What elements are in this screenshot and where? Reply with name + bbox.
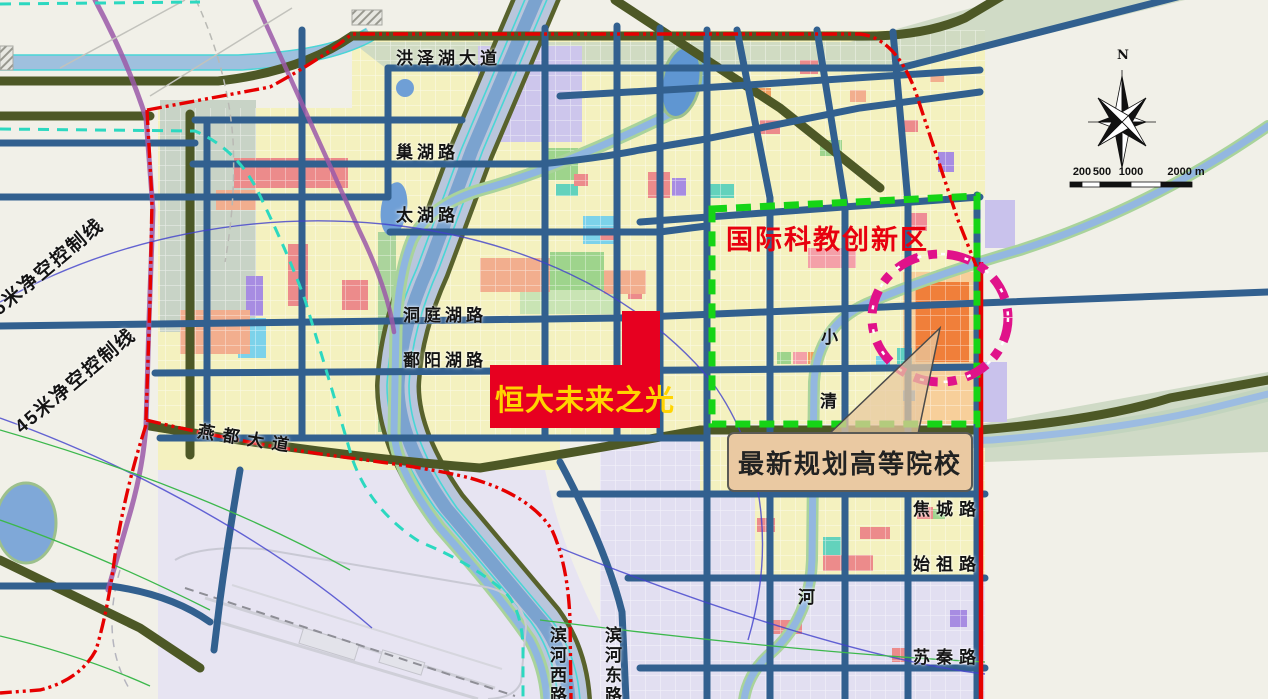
river-char-qing: 清: [820, 387, 841, 412]
hatched-area-left: [0, 46, 13, 70]
road-label-chaohu: 巢湖路: [396, 138, 459, 163]
road-label-jiaocheng: 焦城路: [913, 495, 982, 520]
river-char-he: 河: [798, 583, 819, 608]
scale-tick-500: 500: [1088, 166, 1116, 178]
colleges-callout-box: 最新规划高等院校: [727, 432, 973, 492]
scale-tick-2000: 2000 m: [1162, 166, 1210, 178]
road-label-suqin: 苏秦路: [913, 643, 982, 668]
road-label-hongzehu: 洪泽湖大道: [396, 44, 501, 69]
map-canvas: [0, 0, 1268, 699]
river-char-xiao: 小: [821, 323, 842, 348]
hatched-area: [352, 10, 382, 25]
scale-bar: [1070, 182, 1192, 187]
science-zone-label: 国际科教创新区: [726, 218, 929, 257]
road-label-dongtinghu: 洞庭湖路: [403, 301, 487, 326]
road-label-poyanghu: 鄱阳湖路: [403, 346, 487, 371]
scale-tick-1000: 1000: [1114, 166, 1148, 178]
planning-map: 洪泽湖大道 巢湖路 太湖路 洞庭湖路 鄱阳湖路 燕都大道 滨河西路 滨河东路 焦…: [0, 0, 1268, 699]
hengda-zone-label: 恒大未来之光: [495, 377, 665, 419]
compass-north-label: N: [1108, 48, 1138, 63]
road-label-binhe-east: 滨河东路: [599, 626, 624, 699]
road-label-shizu: 始祖路: [913, 550, 982, 575]
road-label-taihu: 太湖路: [396, 201, 459, 226]
road-label-binhe-west: 滨河西路: [544, 626, 569, 699]
colleges-callout-label: 最新规划高等院校: [738, 444, 962, 481]
